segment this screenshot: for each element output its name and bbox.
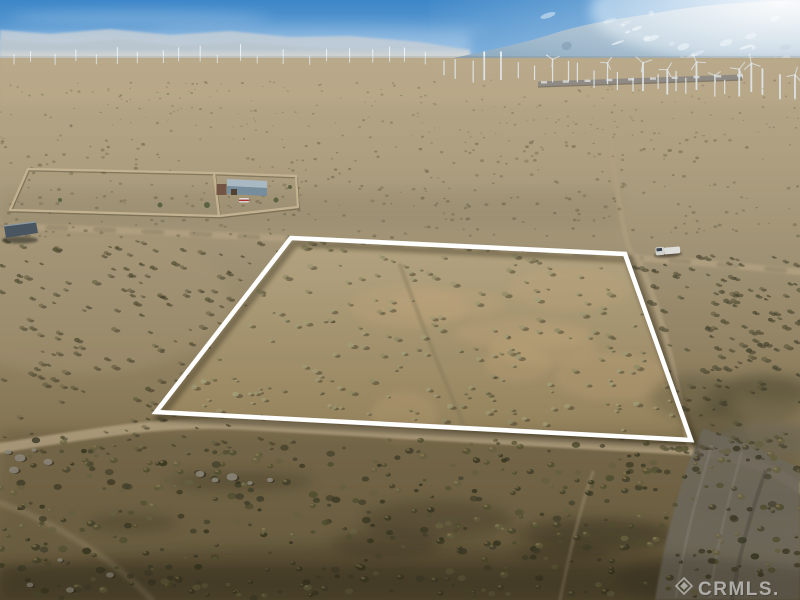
aerial-photo: CRMLS. CRMLS. <box>0 0 800 600</box>
watermark-text: CRMLS. <box>698 579 780 600</box>
